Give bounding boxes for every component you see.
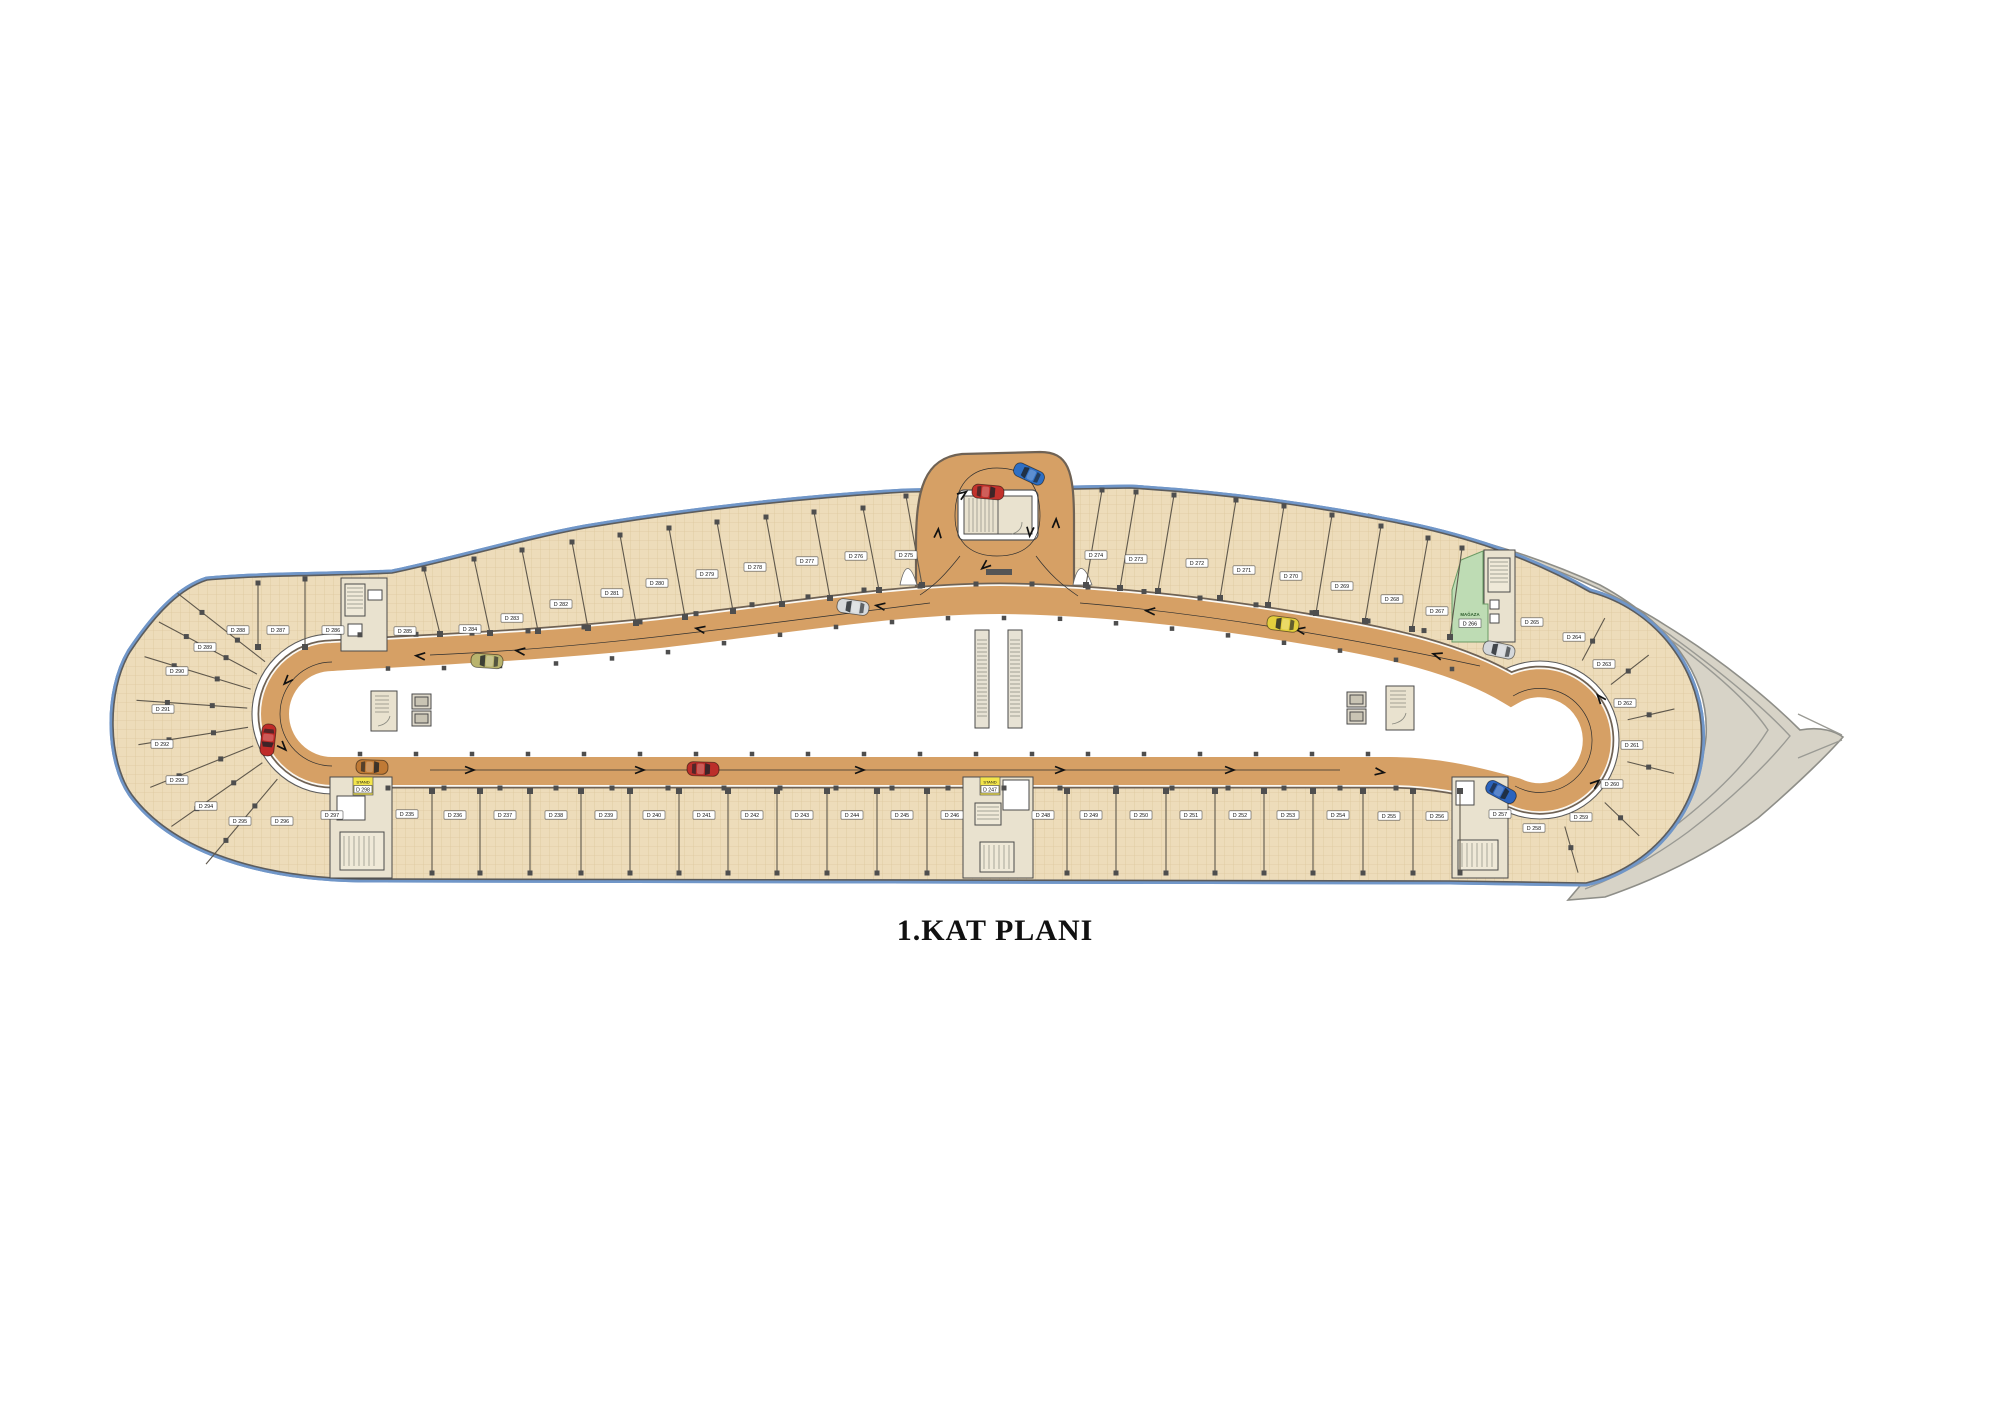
svg-text:D 271: D 271: [1237, 568, 1251, 574]
unit-label: D 271: [1233, 566, 1255, 574]
unit-label: D 237: [494, 811, 516, 819]
svg-text:D 273: D 273: [1129, 557, 1143, 563]
svg-text:D 248: D 248: [1036, 813, 1050, 819]
unit-label: D 272: [1186, 559, 1208, 567]
svg-text:D 283: D 283: [505, 616, 519, 622]
unit-label: D 242: [741, 811, 763, 819]
svg-text:D 261: D 261: [1625, 743, 1639, 749]
unit-label: D 283: [501, 614, 523, 622]
unit-label: D 276: [845, 552, 867, 560]
svg-text:D 244: D 244: [845, 813, 859, 819]
svg-text:D 251: D 251: [1184, 813, 1198, 819]
unit-label: D 257: [1489, 810, 1511, 818]
unit-label: D 243: [791, 811, 813, 819]
svg-text:D 288: D 288: [231, 628, 245, 634]
unit-label: D 250: [1130, 811, 1152, 819]
unit-label: D 294: [195, 802, 217, 810]
red-car-icon: [687, 761, 719, 776]
svg-text:D 237: D 237: [498, 813, 512, 819]
unit-label: D 254: [1327, 811, 1349, 819]
unit-label: D 256: [1426, 812, 1448, 820]
unit-label: D 297: [321, 811, 343, 819]
unit-label: D 235: [396, 810, 418, 818]
svg-text:D 259: D 259: [1574, 815, 1588, 821]
floor-plan-canvas: D 288D 287D 286D 285D 284D 283D 282D 281…: [0, 0, 2000, 1413]
unit-label: D 285: [394, 627, 416, 635]
road-marking: [986, 569, 1012, 575]
svg-text:MAĞAZA: MAĞAZA: [1460, 612, 1480, 617]
unit-label: D 284: [459, 625, 481, 633]
svg-text:D 256: D 256: [1430, 814, 1444, 820]
svg-text:D 252: D 252: [1233, 813, 1247, 819]
unit-label: D 263: [1593, 660, 1615, 668]
svg-text:D 274: D 274: [1089, 553, 1103, 559]
svg-text:D 294: D 294: [199, 804, 213, 810]
unit-label: D 239: [595, 811, 617, 819]
unit-label: D 287: [267, 626, 289, 634]
svg-text:D 270: D 270: [1284, 574, 1298, 580]
svg-text:D 253: D 253: [1281, 813, 1295, 819]
unit-label: D 253: [1277, 811, 1299, 819]
svg-text:D 267: D 267: [1430, 609, 1444, 615]
svg-text:D 298: D 298: [356, 787, 370, 793]
svg-text:D 278: D 278: [748, 565, 762, 571]
svg-text:D 297: D 297: [325, 813, 339, 819]
svg-text:D 290: D 290: [170, 669, 184, 675]
unit-label: D 258: [1523, 824, 1545, 832]
svg-text:D 295: D 295: [233, 819, 247, 825]
unit-label: D 265: [1521, 618, 1543, 626]
svg-text:D 286: D 286: [326, 628, 340, 634]
unit-label: D 255: [1378, 812, 1400, 820]
unit-label: D 262: [1614, 699, 1636, 707]
svg-text:D 250: D 250: [1134, 813, 1148, 819]
svg-text:D 287: D 287: [271, 628, 285, 634]
unit-label: D 292: [151, 740, 173, 748]
svg-text:D 266: D 266: [1463, 621, 1477, 627]
svg-text:D 264: D 264: [1567, 635, 1581, 641]
unit-label: D 274: [1085, 551, 1107, 559]
unit-label: D 261: [1621, 741, 1643, 749]
unit-label: D 241: [693, 811, 715, 819]
svg-text:STAND: STAND: [356, 780, 369, 785]
svg-text:D 249: D 249: [1084, 813, 1098, 819]
unit-label: D 295: [229, 817, 251, 825]
svg-text:D 246: D 246: [945, 813, 959, 819]
unit-label: D 245: [891, 811, 913, 819]
unit-label: D 286: [322, 626, 344, 634]
svg-text:D 284: D 284: [463, 627, 477, 633]
svg-text:D 265: D 265: [1525, 620, 1539, 626]
svg-text:D 260: D 260: [1605, 782, 1619, 788]
svg-text:D 236: D 236: [448, 813, 462, 819]
svg-text:D 241: D 241: [697, 813, 711, 819]
svg-text:D 255: D 255: [1382, 814, 1396, 820]
unit-label: D 291: [152, 705, 174, 713]
svg-text:D 268: D 268: [1385, 597, 1399, 603]
unit-label: D 275: [895, 551, 917, 559]
svg-text:D 238: D 238: [549, 813, 563, 819]
unit-label: D 290: [166, 667, 188, 675]
unit-label: D 249: [1080, 811, 1102, 819]
svg-text:D 279: D 279: [700, 572, 714, 578]
unit-label: D 278: [744, 563, 766, 571]
svg-text:D 239: D 239: [599, 813, 613, 819]
unit-label: D 289: [194, 643, 216, 651]
svg-text:D 262: D 262: [1618, 701, 1632, 707]
svg-text:D 291: D 291: [156, 707, 170, 713]
orange-car-icon: [356, 759, 388, 774]
svg-text:D 254: D 254: [1331, 813, 1345, 819]
unit-label: D 240: [643, 811, 665, 819]
svg-text:STAND: STAND: [983, 780, 996, 785]
unit-label: D 269: [1331, 582, 1353, 590]
svg-text:D 240: D 240: [647, 813, 661, 819]
svg-text:D 293: D 293: [170, 778, 184, 784]
svg-text:D 257: D 257: [1493, 812, 1507, 818]
svg-text:D 272: D 272: [1190, 561, 1204, 567]
unit-label: D 277: [796, 557, 818, 565]
unit-label: D 288: [227, 626, 249, 634]
unit-label: D 293: [166, 776, 188, 784]
unit-label: D 281: [601, 589, 623, 597]
unit-label: D 264: [1563, 633, 1585, 641]
svg-text:D 292: D 292: [155, 742, 169, 748]
svg-text:D 277: D 277: [800, 559, 814, 565]
svg-text:D 243: D 243: [795, 813, 809, 819]
unit-label: D 248: [1032, 811, 1054, 819]
svg-text:D 247: D 247: [983, 787, 997, 793]
shop-label: MAĞAZAD 266: [1459, 612, 1481, 627]
unit-label: D 246: [941, 811, 963, 819]
svg-text:D 242: D 242: [745, 813, 759, 819]
unit-label: D 270: [1280, 572, 1302, 580]
svg-text:D 269: D 269: [1335, 584, 1349, 590]
red-car-icon: [971, 484, 1004, 501]
unit-label: D 268: [1381, 595, 1403, 603]
stand-label: STANDD 247: [980, 777, 1000, 795]
svg-text:D 280: D 280: [650, 581, 664, 587]
unit-label: D 267: [1426, 607, 1448, 615]
svg-text:D 258: D 258: [1527, 826, 1541, 832]
unit-label: D 273: [1125, 555, 1147, 563]
unit-label: D 252: [1229, 811, 1251, 819]
unit-label: D 238: [545, 811, 567, 819]
svg-text:D 282: D 282: [554, 602, 568, 608]
stand-label: STANDD 298: [353, 777, 373, 795]
unit-label: D 280: [646, 579, 668, 587]
unit-label: D 251: [1180, 811, 1202, 819]
unit-label: D 282: [550, 600, 572, 608]
unit-label: D 244: [841, 811, 863, 819]
svg-text:D 276: D 276: [849, 554, 863, 560]
svg-text:D 245: D 245: [895, 813, 909, 819]
khaki-car-icon: [471, 653, 504, 669]
svg-text:D 263: D 263: [1597, 662, 1611, 668]
unit-label: D 259: [1570, 813, 1592, 821]
svg-text:D 235: D 235: [400, 812, 414, 818]
svg-text:D 275: D 275: [899, 553, 913, 559]
floor-plan-page: D 288D 287D 286D 285D 284D 283D 282D 281…: [0, 0, 2000, 1413]
svg-text:D 281: D 281: [605, 591, 619, 597]
unit-label: D 296: [271, 817, 293, 825]
unit-label: D 236: [444, 811, 466, 819]
unit-label: D 260: [1601, 780, 1623, 788]
svg-text:D 296: D 296: [275, 819, 289, 825]
svg-text:D 289: D 289: [198, 645, 212, 651]
unit-label: D 279: [696, 570, 718, 578]
floor-title: 1.KAT PLANI: [897, 914, 1094, 947]
svg-text:D 285: D 285: [398, 629, 412, 635]
red-car-icon: [259, 723, 276, 756]
